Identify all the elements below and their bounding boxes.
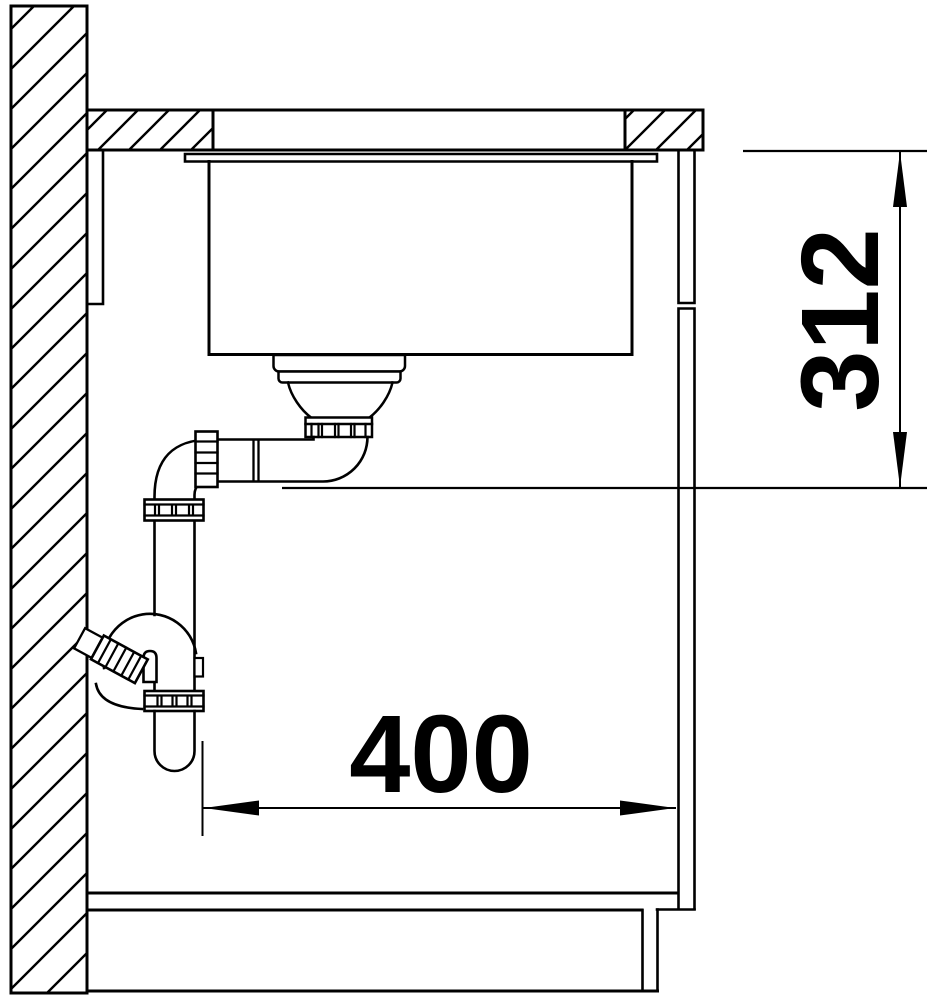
- pipe-clip: [195, 658, 204, 677]
- arrow-right: [620, 801, 675, 816]
- bottom-shelf: [87, 893, 677, 910]
- strainer-body: [279, 372, 401, 383]
- wall-batten: [88, 151, 103, 304]
- installation-drawing: 312 400: [0, 0, 945, 1000]
- arrow-left: [204, 801, 259, 816]
- base-cabinet: [87, 151, 695, 991]
- dimension-312: 312: [779, 151, 907, 488]
- plinth: [643, 910, 658, 992]
- strainer-flange: [274, 355, 406, 372]
- dimension-400-label: 400: [349, 693, 533, 816]
- sink-bowl: [185, 154, 657, 355]
- dimension-400: 400: [203, 693, 677, 836]
- trap-outlet-lip: [144, 651, 157, 682]
- elbow-union-nut: [196, 432, 218, 488]
- sink-rim: [185, 154, 657, 162]
- strainer-locknut: [306, 418, 373, 438]
- side-panel: [679, 152, 695, 909]
- strainer-cone: [288, 383, 393, 418]
- siphon-trap: [73, 614, 203, 771]
- trap-cup: [155, 711, 195, 771]
- wall-section: [11, 6, 87, 993]
- pipe-union-nut: [145, 500, 204, 521]
- strainer-assembly: [274, 355, 406, 437]
- drain-pipe: [145, 432, 368, 692]
- countertop: [87, 110, 703, 150]
- arrow-up: [893, 152, 907, 207]
- arrow-down: [893, 432, 907, 487]
- trap-cup-nut: [145, 691, 204, 711]
- dimension-312-label: 312: [779, 228, 902, 412]
